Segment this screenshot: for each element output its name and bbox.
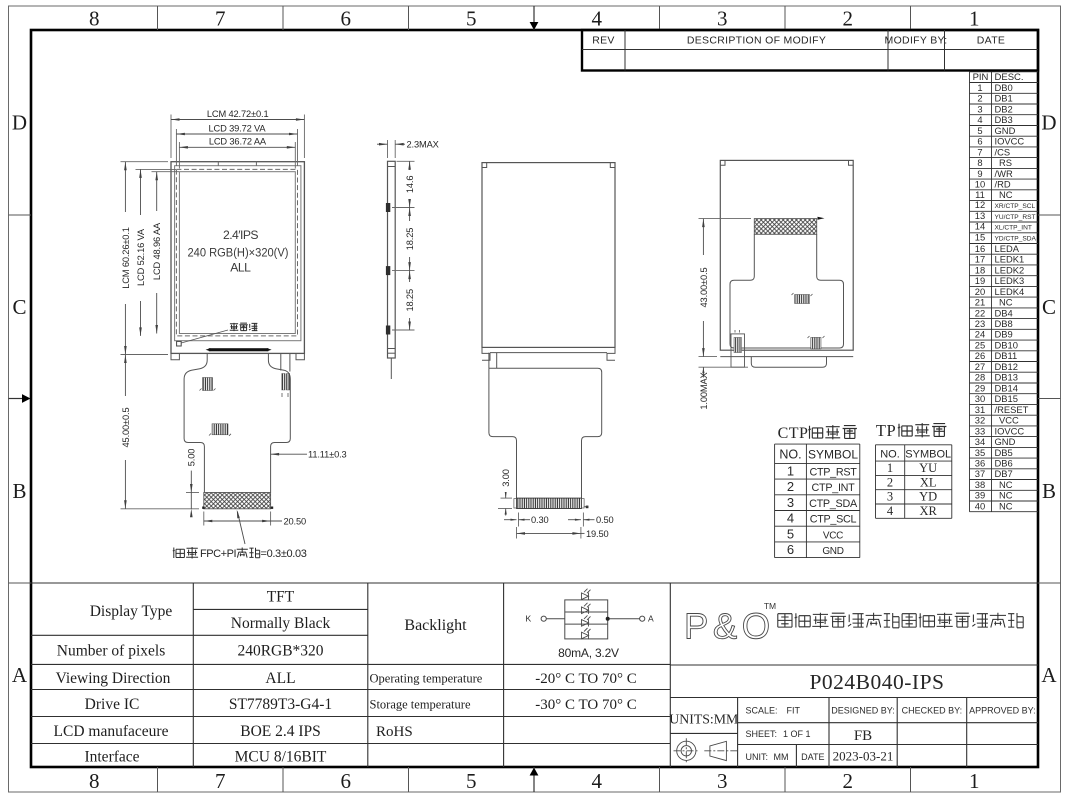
- svg-text:8: 8: [977, 157, 982, 168]
- svg-text:1: 1: [969, 769, 980, 793]
- svg-text:4: 4: [591, 769, 602, 793]
- svg-text:/RD: /RD: [995, 179, 1011, 190]
- svg-text:3: 3: [717, 769, 728, 793]
- svg-text:DB9: DB9: [995, 329, 1013, 340]
- svg-text:GND: GND: [822, 546, 843, 557]
- svg-text:3: 3: [977, 103, 982, 114]
- svg-text:SHEET:: SHEET:: [746, 729, 778, 739]
- svg-text:BOE 2.4 IPS: BOE 2.4 IPS: [240, 723, 321, 740]
- svg-text:RS: RS: [999, 157, 1012, 168]
- svg-text:YU/CTP_RST: YU/CTP_RST: [995, 214, 1036, 221]
- svg-text:DB2: DB2: [995, 103, 1013, 114]
- svg-text:2023-03-21: 2023-03-21: [833, 749, 894, 764]
- svg-text:APPROVED BY:: APPROVED BY:: [969, 706, 1036, 716]
- svg-text:IOVCC: IOVCC: [995, 136, 1025, 147]
- svg-text:IOVCC: IOVCC: [995, 425, 1025, 436]
- svg-text:6: 6: [977, 136, 982, 147]
- svg-text:/RESET: /RESET: [995, 404, 1029, 415]
- svg-text:25: 25: [975, 339, 985, 350]
- svg-text:9: 9: [977, 168, 982, 179]
- svg-text:DB8: DB8: [995, 318, 1013, 329]
- svg-text:Display Type: Display Type: [90, 603, 173, 620]
- svg-text:0.50: 0.50: [596, 515, 614, 525]
- svg-text:4: 4: [787, 511, 794, 526]
- svg-text:6: 6: [787, 542, 794, 557]
- svg-text:240 RGB(H)×320(V): 240 RGB(H)×320(V): [188, 245, 289, 259]
- svg-text:38: 38: [975, 479, 985, 490]
- svg-text:VCC: VCC: [823, 530, 843, 541]
- svg-text:Viewing Direction: Viewing Direction: [56, 670, 171, 687]
- svg-text:18.25: 18.25: [405, 289, 415, 312]
- svg-text:B: B: [12, 479, 26, 503]
- svg-text:CTP_INT: CTP_INT: [812, 482, 856, 494]
- svg-text:LEDA: LEDA: [995, 243, 1020, 254]
- svg-text:30: 30: [975, 393, 985, 404]
- svg-text:DB6: DB6: [995, 458, 1013, 469]
- svg-text:SCALE:: SCALE:: [746, 706, 778, 716]
- svg-text:1: 1: [887, 461, 893, 475]
- svg-text:3: 3: [717, 7, 728, 31]
- svg-text:28: 28: [975, 372, 985, 383]
- svg-text:DESCRIPTION OF MODIFY: DESCRIPTION OF MODIFY: [687, 35, 826, 47]
- svg-text:DB1: DB1: [995, 93, 1013, 104]
- svg-text:2.4′IPS: 2.4′IPS: [223, 228, 258, 242]
- svg-text:2.3MAX: 2.3MAX: [407, 139, 439, 149]
- svg-text:4: 4: [591, 7, 602, 31]
- svg-text:33: 33: [975, 425, 985, 436]
- svg-text:1: 1: [787, 464, 794, 479]
- svg-text:34: 34: [975, 436, 985, 447]
- svg-text:5.00: 5.00: [187, 449, 197, 467]
- svg-text:DB14: DB14: [995, 382, 1018, 393]
- svg-text:DB15: DB15: [995, 393, 1018, 404]
- svg-text:Drive IC: Drive IC: [85, 696, 140, 713]
- svg-text:SYMBOL: SYMBOL: [905, 448, 951, 460]
- svg-text:LEDK1: LEDK1: [995, 254, 1025, 265]
- svg-text:VCC: VCC: [999, 415, 1019, 426]
- svg-text:CTP_RST: CTP_RST: [809, 467, 857, 479]
- svg-text:Interface: Interface: [84, 749, 139, 766]
- svg-text:FIT: FIT: [787, 706, 801, 716]
- svg-text:29: 29: [975, 382, 985, 393]
- svg-text:12: 12: [975, 199, 985, 210]
- svg-text:UNIT:: UNIT:: [746, 752, 769, 762]
- svg-text:1: 1: [969, 7, 980, 31]
- svg-text:5: 5: [466, 769, 477, 793]
- svg-text:14.6: 14.6: [405, 176, 415, 194]
- svg-text:31: 31: [975, 404, 985, 415]
- svg-text:45.00±0.5: 45.00±0.5: [121, 408, 131, 448]
- svg-text:A: A: [12, 663, 28, 687]
- svg-text:27: 27: [975, 361, 985, 372]
- svg-text:5: 5: [977, 125, 982, 136]
- svg-text:NO.: NO.: [880, 448, 900, 460]
- svg-text:MCU 8/16BIT: MCU 8/16BIT: [235, 749, 327, 766]
- svg-text:DATE: DATE: [977, 35, 1005, 47]
- svg-text:DB5: DB5: [995, 447, 1013, 458]
- svg-text:39: 39: [975, 490, 985, 501]
- svg-text:2: 2: [842, 769, 853, 793]
- svg-text:A: A: [648, 614, 654, 624]
- svg-text:35: 35: [975, 447, 985, 458]
- svg-text:LCD manufaceure: LCD manufaceure: [54, 723, 169, 740]
- svg-text:4: 4: [977, 114, 982, 125]
- svg-text:8: 8: [89, 769, 100, 793]
- svg-text:DB12: DB12: [995, 361, 1018, 372]
- svg-text:P&O: P&O: [684, 606, 775, 647]
- svg-text:CTP_SCL: CTP_SCL: [810, 514, 857, 526]
- svg-text:SYMBOL: SYMBOL: [808, 448, 858, 462]
- svg-text:LCD 48.96 AA: LCD 48.96 AA: [152, 222, 162, 280]
- svg-text:LCD 36.72 AA: LCD 36.72 AA: [209, 137, 267, 147]
- svg-text:NO.: NO.: [779, 448, 801, 462]
- svg-text:40: 40: [975, 500, 985, 511]
- svg-text:19: 19: [975, 275, 985, 286]
- svg-text:240RGB*320: 240RGB*320: [237, 643, 323, 660]
- svg-text:XL: XL: [920, 475, 937, 489]
- svg-text:NC: NC: [999, 500, 1013, 511]
- svg-text:5: 5: [787, 526, 794, 541]
- svg-text:6: 6: [340, 769, 351, 793]
- svg-text:CTP: CTP: [778, 425, 809, 442]
- svg-text:LCD 39.72 VA: LCD 39.72 VA: [209, 123, 267, 133]
- svg-text:32: 32: [975, 415, 985, 426]
- svg-text:DB10: DB10: [995, 339, 1018, 350]
- svg-text:Operating temperature: Operating temperature: [370, 672, 483, 686]
- svg-text:7: 7: [215, 769, 226, 793]
- svg-text:NC: NC: [999, 479, 1013, 490]
- svg-text:DB4: DB4: [995, 307, 1013, 318]
- svg-text:14: 14: [975, 221, 985, 232]
- svg-text:1.00MAX: 1.00MAX: [699, 372, 709, 409]
- svg-text:-20° C TO 70° C: -20° C TO 70° C: [535, 671, 636, 687]
- svg-text:20.50: 20.50: [284, 517, 307, 527]
- svg-text:17: 17: [975, 254, 985, 265]
- svg-text:7: 7: [977, 146, 982, 157]
- svg-text:YD: YD: [919, 490, 937, 504]
- svg-text:/WR: /WR: [995, 168, 1013, 179]
- svg-text:XR/CTP_SCL: XR/CTP_SCL: [995, 203, 1036, 210]
- svg-text:TP: TP: [876, 421, 896, 440]
- svg-text:1 OF 1: 1 OF 1: [783, 729, 811, 739]
- svg-text:18.25: 18.25: [405, 228, 415, 251]
- svg-text:24: 24: [975, 329, 985, 340]
- svg-text:26: 26: [975, 350, 985, 361]
- svg-text:YU: YU: [919, 461, 937, 475]
- svg-text:LCD 52.16 VA: LCD 52.16 VA: [136, 228, 146, 286]
- svg-text:LEDK3: LEDK3: [995, 275, 1025, 286]
- svg-text:13: 13: [975, 210, 985, 221]
- svg-text:GND: GND: [995, 436, 1016, 447]
- svg-text:21: 21: [975, 297, 985, 308]
- svg-text:LCM 42.72±0.1: LCM 42.72±0.1: [207, 109, 269, 119]
- svg-text:16: 16: [975, 243, 985, 254]
- svg-text:8: 8: [89, 7, 100, 31]
- svg-text:FPC+PI: FPC+PI: [200, 548, 237, 560]
- svg-text:ALL: ALL: [265, 670, 295, 687]
- svg-text:80mA, 3.2V: 80mA, 3.2V: [558, 646, 619, 660]
- svg-text:D: D: [12, 111, 27, 135]
- svg-text:DB7: DB7: [995, 468, 1013, 479]
- svg-text:NC: NC: [999, 189, 1013, 200]
- svg-text:1: 1: [977, 82, 982, 93]
- svg-text:6: 6: [340, 7, 351, 31]
- svg-text:20: 20: [975, 286, 985, 297]
- svg-text:=0.3±0.03: =0.3±0.03: [261, 548, 307, 560]
- svg-text:LEDK2: LEDK2: [995, 264, 1025, 275]
- svg-text:4: 4: [887, 504, 894, 518]
- svg-text:DB11: DB11: [995, 350, 1018, 361]
- svg-text:NC: NC: [999, 490, 1013, 501]
- svg-text:B: B: [1042, 479, 1056, 503]
- svg-text:23: 23: [975, 318, 985, 329]
- svg-text:UNITS:MM: UNITS:MM: [669, 712, 738, 727]
- svg-text:LEDK4: LEDK4: [995, 286, 1025, 297]
- svg-text:0.30: 0.30: [531, 515, 549, 525]
- svg-text:TFT: TFT: [267, 589, 295, 606]
- svg-text:RoHS: RoHS: [376, 724, 413, 740]
- svg-text:43.00±0.5: 43.00±0.5: [699, 268, 709, 308]
- svg-text:19.50: 19.50: [586, 529, 609, 539]
- svg-text:TM: TM: [764, 601, 776, 611]
- svg-text:-30° C TO 70° C: -30° C TO 70° C: [535, 697, 636, 713]
- svg-text:C: C: [12, 295, 26, 319]
- svg-text:D: D: [1041, 111, 1056, 135]
- svg-text:XR: XR: [920, 504, 938, 518]
- svg-text:DB13: DB13: [995, 372, 1018, 383]
- svg-text:Backlight: Backlight: [404, 617, 467, 634]
- svg-text:A: A: [1041, 663, 1057, 687]
- svg-text:DB0: DB0: [995, 82, 1013, 93]
- svg-text:Number of pixels: Number of pixels: [57, 643, 165, 660]
- svg-text:3.00: 3.00: [501, 469, 511, 487]
- svg-text:DESIGNED BY:: DESIGNED BY:: [831, 706, 895, 716]
- svg-text:Normally Black: Normally Black: [231, 615, 331, 632]
- svg-text:ST7789T3-G4-1: ST7789T3-G4-1: [229, 696, 332, 713]
- svg-text:7: 7: [215, 7, 226, 31]
- svg-text:2: 2: [787, 479, 794, 494]
- svg-text:MM: MM: [774, 752, 789, 762]
- svg-text:10: 10: [975, 179, 985, 190]
- svg-text:2: 2: [977, 93, 982, 104]
- svg-text:15: 15: [975, 231, 985, 242]
- svg-text:MODIFY BY:: MODIFY BY:: [885, 35, 948, 47]
- svg-text:18: 18: [975, 264, 985, 275]
- svg-text:YD/CTP_SDA: YD/CTP_SDA: [995, 235, 1037, 242]
- svg-text:11.11±0.3: 11.11±0.3: [308, 449, 347, 459]
- svg-text:3: 3: [787, 495, 794, 510]
- svg-text:22: 22: [975, 307, 985, 318]
- svg-text:K: K: [526, 614, 532, 624]
- svg-text:REV: REV: [592, 35, 615, 47]
- svg-text:Storage temperature: Storage temperature: [370, 698, 471, 712]
- svg-text:NC: NC: [999, 297, 1013, 308]
- svg-text:CTP_SDA: CTP_SDA: [809, 498, 858, 510]
- svg-text:37: 37: [975, 468, 985, 479]
- svg-text:XL/CTP_INT: XL/CTP_INT: [995, 225, 1032, 232]
- svg-text:3: 3: [887, 490, 893, 504]
- svg-text:C: C: [1042, 295, 1056, 319]
- svg-text:GND: GND: [995, 125, 1016, 136]
- svg-text:/CS: /CS: [995, 146, 1011, 157]
- svg-text:DATE: DATE: [801, 752, 824, 762]
- svg-text:ALL: ALL: [230, 261, 251, 275]
- svg-text:2: 2: [842, 7, 853, 31]
- svg-text:2: 2: [887, 475, 893, 489]
- svg-text:5: 5: [466, 7, 477, 31]
- svg-text:P024B040-IPS: P024B040-IPS: [809, 670, 944, 694]
- svg-text:LCM 60.26±0.1: LCM 60.26±0.1: [121, 227, 131, 289]
- svg-text:FB: FB: [854, 728, 872, 744]
- svg-text:CHECKED BY:: CHECKED BY:: [902, 706, 963, 716]
- svg-text:DB3: DB3: [995, 114, 1013, 125]
- svg-text:36: 36: [975, 458, 985, 469]
